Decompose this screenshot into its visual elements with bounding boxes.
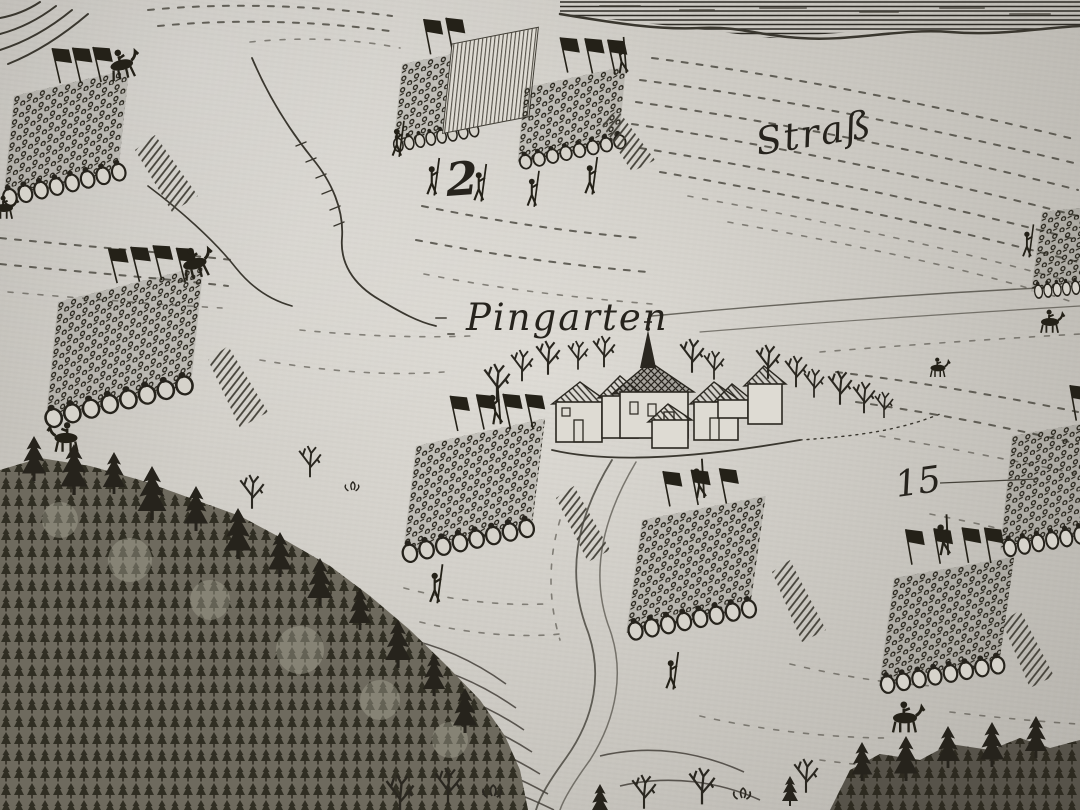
thicket-bottom-right (782, 716, 1080, 810)
scattered-bushes (240, 446, 359, 509)
road-strass-lines (652, 286, 1080, 332)
bare-tree-icon (240, 475, 263, 509)
conifer-tree-icon (591, 784, 609, 810)
bush-icon (345, 482, 359, 491)
horseman-figure (1041, 310, 1064, 333)
hedge (800, 414, 940, 440)
label-number-2: 2 (443, 151, 480, 207)
flag-icon (720, 465, 743, 503)
block-shadow-hatch (1002, 610, 1054, 688)
block-shadow-hatch (135, 135, 198, 212)
flag-icon (73, 44, 97, 83)
house (744, 366, 786, 424)
skirmisher-figure (666, 652, 678, 690)
horseman-figure (893, 701, 924, 732)
label-number-15: 15 (893, 459, 944, 506)
label-strass: Straß (753, 102, 876, 164)
troop-block-top-right-edge (1023, 206, 1080, 299)
troop-block-mid-left (9, 224, 244, 429)
label-pingarten: Pingarten (465, 296, 669, 339)
horseman-figure (931, 358, 951, 377)
block-shadow-hatch (772, 560, 826, 642)
troop-block-center (372, 376, 570, 563)
photographed-map-page: Straß Pingarten 2 15 (0, 0, 1080, 810)
label-pingarten-dashes (436, 318, 454, 334)
flag-icon (906, 526, 928, 564)
bare-tree-icon (689, 768, 714, 804)
skirmisher-figure (1023, 224, 1033, 257)
block-shadow-hatch (208, 346, 268, 428)
riverbank-top (560, 0, 1080, 39)
skirmisher-figure (585, 157, 597, 195)
block-shadow-hatch (556, 486, 610, 562)
pike-square-2 (371, 12, 655, 172)
bare-tree-icon (632, 775, 655, 809)
flag-icon (560, 34, 583, 73)
skirmisher-figure (427, 158, 439, 196)
flag-icon (503, 390, 526, 429)
troop-block-center-right (596, 448, 788, 641)
flag-icon (585, 35, 608, 74)
flag-icon (108, 244, 132, 283)
bare-tree-icon (794, 759, 817, 793)
house (552, 382, 608, 442)
flag-icon (450, 392, 473, 431)
flag-icon (962, 525, 984, 563)
flag-icon (52, 45, 76, 84)
bare-tree-icon (299, 446, 321, 477)
skirmisher-figure (430, 564, 442, 603)
conifer-tree-icon (782, 776, 798, 806)
flag-icon (424, 16, 447, 54)
flag-icon (663, 468, 686, 506)
flag-icon (1070, 382, 1080, 420)
engraved-battle-map: Straß Pingarten 2 15 (0, 0, 1080, 810)
skirmisher-figure (528, 171, 539, 207)
